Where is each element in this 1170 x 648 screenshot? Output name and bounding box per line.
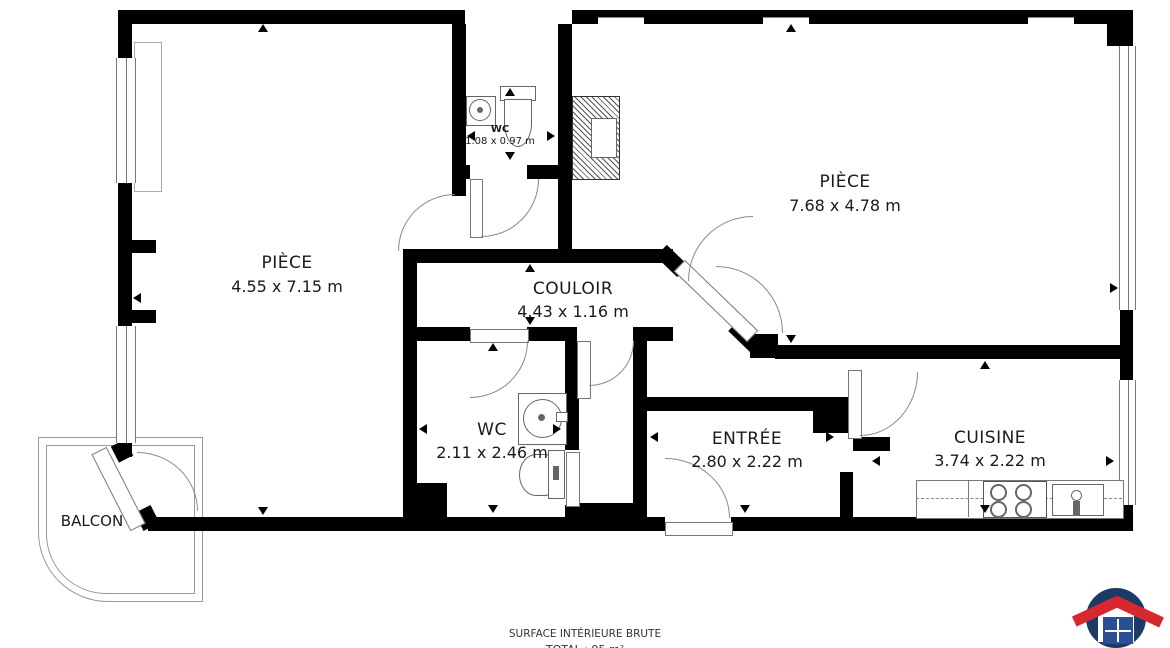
agency-logo xyxy=(1072,578,1168,648)
dimension-arrow xyxy=(258,507,268,515)
wall xyxy=(118,10,465,24)
dimension-arrow xyxy=(258,24,268,32)
door-arc xyxy=(860,372,918,436)
dimension-arrow xyxy=(740,505,750,513)
wall-stub xyxy=(132,310,156,323)
room-dims-wc: 2.11 x 2.46 m xyxy=(402,443,582,462)
dimension-arrow xyxy=(980,361,990,369)
window-sill xyxy=(134,42,162,192)
dimension-arrow xyxy=(488,505,498,513)
dimension-arrow xyxy=(786,24,796,32)
wall xyxy=(452,24,466,196)
dimension-arrow xyxy=(133,293,141,303)
floor-plan: PIÈCE 4.55 x 7.15 m PIÈCE 7.68 x 4.78 m … xyxy=(0,0,1170,648)
door-arc xyxy=(470,341,528,398)
door-arc xyxy=(398,194,455,251)
room-label-piece-right: PIÈCE xyxy=(745,172,945,192)
wall xyxy=(633,327,647,531)
room-dims-piece-left: 4.55 x 7.15 m xyxy=(187,277,387,296)
room-label-couloir: COULOIR xyxy=(473,279,673,299)
burner-icon xyxy=(990,501,1007,518)
dimension-arrow xyxy=(525,264,535,272)
wall xyxy=(527,165,558,179)
door-arc xyxy=(589,341,634,386)
sink-drain-icon xyxy=(477,107,483,113)
wall xyxy=(465,165,470,179)
wall xyxy=(118,183,132,326)
logo-window-icon xyxy=(1103,617,1133,644)
dimension-arrow xyxy=(1110,283,1118,293)
wall xyxy=(853,437,890,451)
room-dims-entree: 2.80 x 2.22 m xyxy=(647,452,847,471)
room-dims-wc-top: 1.08 x 0.97 m xyxy=(455,136,545,147)
room-label-balcon: BALCON xyxy=(32,512,152,530)
dimension-arrow xyxy=(980,505,990,513)
room-label-wc-top: WC xyxy=(465,124,535,135)
burner-icon xyxy=(1015,501,1032,518)
dimension-arrow xyxy=(872,456,880,466)
wall xyxy=(775,345,1133,359)
room-label-entree: ENTRÉE xyxy=(647,429,847,449)
wall xyxy=(813,397,853,433)
wall xyxy=(148,517,633,531)
faucet-icon xyxy=(1071,490,1082,501)
room-dims-piece-right: 7.68 x 4.78 m xyxy=(745,196,945,215)
footer-total-label: TOTAL : 95 m² xyxy=(485,643,685,648)
window xyxy=(116,58,136,183)
entrance-door-leaf xyxy=(665,522,733,536)
room-label-wc: WC xyxy=(412,420,572,440)
burner-icon xyxy=(1015,484,1032,501)
burner-icon xyxy=(990,484,1007,501)
wall xyxy=(527,327,577,341)
dimension-arrow xyxy=(505,88,515,96)
dimension-arrow xyxy=(547,131,555,141)
dimension-arrow xyxy=(488,343,498,351)
wall xyxy=(403,327,470,341)
door-arc xyxy=(481,179,539,237)
window-notch xyxy=(1028,17,1074,25)
wall-stub xyxy=(132,240,156,253)
faucet-handle-icon xyxy=(1073,501,1080,515)
wall xyxy=(118,10,132,58)
room-dims-cuisine: 3.74 x 2.22 m xyxy=(890,451,1090,470)
footer-surface-label: SURFACE INTÉRIEURE BRUTE xyxy=(485,628,685,640)
wall xyxy=(1107,10,1133,46)
toilet-flush-icon xyxy=(553,466,559,480)
wall xyxy=(647,517,665,531)
room-dims-couloir: 4.43 x 1.16 m xyxy=(473,302,673,321)
dimension-arrow xyxy=(786,335,796,343)
wall xyxy=(731,517,1133,531)
window xyxy=(116,326,136,443)
shaft-inset xyxy=(591,118,617,158)
door-arc xyxy=(716,266,783,333)
window xyxy=(1119,46,1136,310)
wall xyxy=(750,334,778,358)
wall xyxy=(403,249,673,263)
room-label-piece-left: PIÈCE xyxy=(187,253,387,273)
wall xyxy=(647,397,813,411)
dimension-arrow xyxy=(1106,456,1114,466)
wall xyxy=(558,24,572,263)
window-notch xyxy=(598,17,644,25)
wall xyxy=(578,503,633,517)
dimension-arrow xyxy=(505,152,515,160)
room-label-cuisine: CUISINE xyxy=(890,428,1090,448)
